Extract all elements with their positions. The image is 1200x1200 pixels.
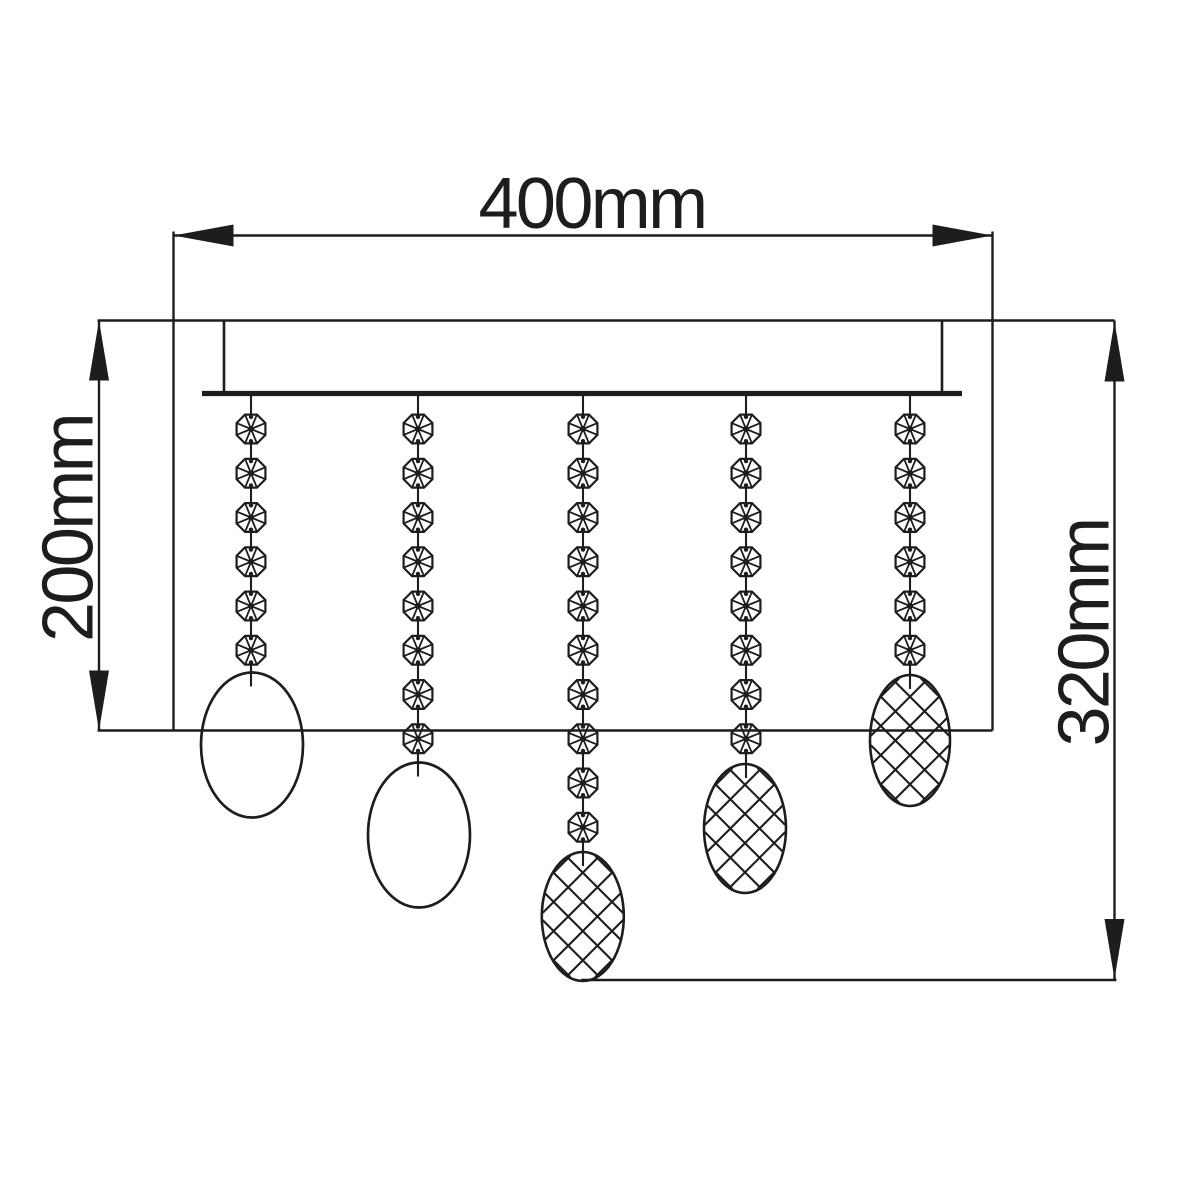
svg-text:400mm: 400mm (478, 164, 705, 244)
svg-text:200mm: 200mm (29, 415, 109, 642)
svg-text:320mm: 320mm (1045, 519, 1125, 746)
